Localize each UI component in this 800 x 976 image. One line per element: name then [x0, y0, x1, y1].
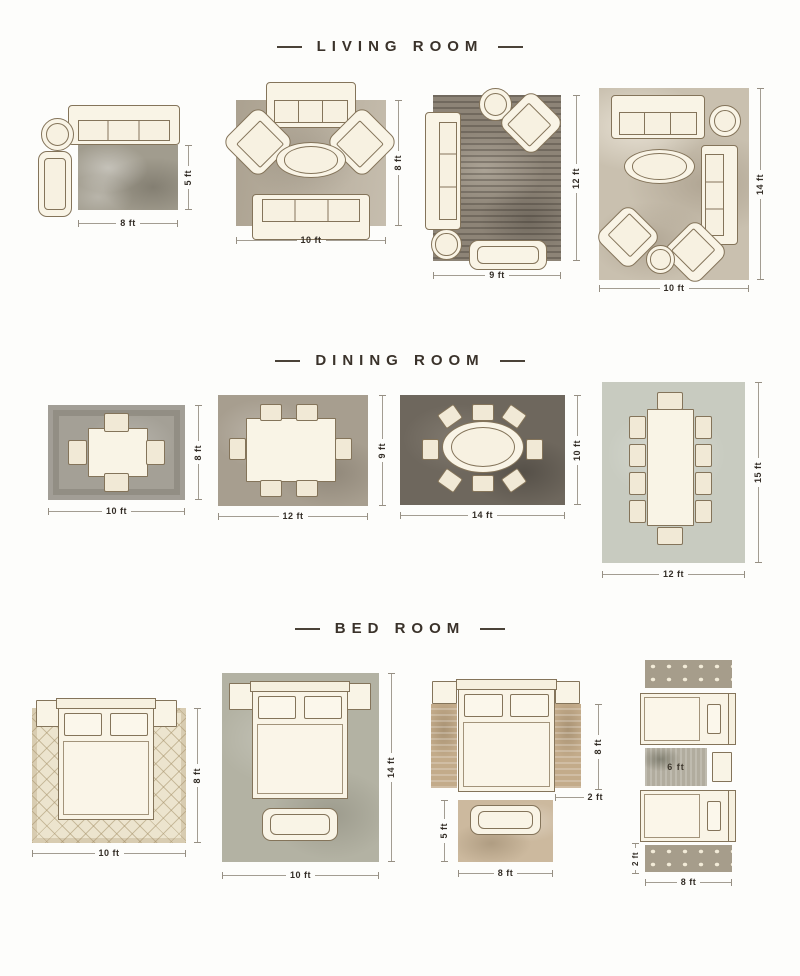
- accent-rug: 6 ft: [645, 748, 707, 786]
- dimension-label: 10 ft: [297, 235, 326, 245]
- oval-coffee-table: [624, 149, 695, 184]
- bed-sheet: [257, 724, 343, 794]
- nightstand: [712, 752, 732, 782]
- round-side-table: [646, 245, 675, 274]
- dining-chair: [695, 444, 712, 467]
- dimension-label: 12 ft: [279, 511, 308, 521]
- width-dimension: 10 ft: [236, 234, 386, 246]
- section-title-label: DINING ROOM: [315, 352, 484, 369]
- pillow: [464, 694, 503, 717]
- runner-rug: [645, 845, 732, 872]
- dimension-label: 15 ft: [753, 458, 763, 487]
- dimension-label: 8 ft: [192, 764, 202, 788]
- dining-chair: [629, 500, 646, 523]
- dining-chair: [260, 480, 282, 497]
- headboard: [56, 698, 156, 709]
- headboard: [728, 693, 736, 745]
- dining-room-layout-9x12: 9 ft 12 ft: [215, 390, 393, 520]
- bed-sheet: [644, 794, 700, 838]
- width-dimension: 14 ft: [400, 509, 565, 521]
- chaise-lounge: [38, 151, 72, 217]
- height-dimension: 10 ft: [570, 395, 584, 505]
- height-dimension: 14 ft: [384, 673, 398, 862]
- pillow: [707, 704, 721, 734]
- dimension-label: 10 ft: [572, 436, 582, 465]
- dining-chair: [526, 439, 543, 460]
- headboard: [250, 681, 350, 692]
- dining-chair: [472, 404, 494, 421]
- rug-size-label: 6 ft: [645, 748, 707, 786]
- width-dimension: 9 ft: [433, 269, 561, 281]
- dimension-label: 8 ft: [494, 868, 518, 878]
- width-dimension: 10 ft: [32, 847, 186, 859]
- height-dimension: 8 ft: [391, 100, 405, 226]
- bed-sheet: [644, 697, 700, 741]
- twin-bed: [640, 790, 736, 842]
- twin-bed: [640, 693, 736, 745]
- dimension-label: 9 ft: [485, 270, 509, 280]
- dining-chair: [229, 438, 246, 460]
- width-dimension: 10 ft: [599, 282, 749, 294]
- pillow: [304, 696, 343, 719]
- dining-chair: [472, 475, 494, 492]
- round-side-table: [41, 118, 74, 151]
- dining-chair: [629, 416, 646, 439]
- bed-sheet: [63, 741, 149, 815]
- bedroom-layout-10x14: 14 ft 10 ft: [215, 665, 397, 881]
- height-dimension: 8 ft: [191, 405, 205, 500]
- pillow: [258, 696, 297, 719]
- headboard: [728, 790, 736, 842]
- dining-chair: [260, 404, 282, 421]
- width-dimension: 12 ft: [218, 510, 368, 522]
- width-dimension: 10 ft: [48, 505, 185, 517]
- dining-chair: [104, 413, 129, 432]
- runner-rug: [555, 704, 581, 788]
- dining-chair: [629, 444, 646, 467]
- pillow: [707, 801, 721, 831]
- pillow: [510, 694, 549, 717]
- dimension-label: 10 ft: [660, 283, 689, 293]
- nightstand: [432, 681, 457, 704]
- dining-chair: [335, 438, 352, 460]
- dining-chair: [146, 440, 165, 465]
- bed-sheet: [463, 722, 550, 787]
- runner-width-dimension: 2 ft: [628, 843, 642, 874]
- dining-room-layout-12x15: 15 ft 12 ft: [598, 375, 776, 577]
- bed: [58, 698, 154, 820]
- round-table: [709, 105, 741, 137]
- width-dimension: 8 ft: [78, 217, 178, 229]
- dimension-label: 9 ft: [377, 439, 387, 463]
- width-dimension: 12 ft: [602, 568, 745, 580]
- height-dimension: 8 ft: [190, 708, 204, 843]
- section-title-label: BED ROOM: [335, 620, 466, 637]
- dimension-label: 14 ft: [468, 510, 497, 520]
- width-dimension: 10 ft: [222, 869, 379, 881]
- pillow: [110, 713, 149, 736]
- sofa: [425, 112, 461, 230]
- width-dimension: 8 ft: [645, 876, 732, 888]
- height-dimension: 12 ft: [569, 95, 583, 261]
- dining-chair: [422, 439, 439, 460]
- dining-table: [246, 418, 336, 482]
- living-room-layout-9x12: 12 ft 9 ft: [425, 88, 597, 280]
- dimension-label: 8 ft: [393, 151, 403, 175]
- living-room-layout-5x8: 5 ft 8 ft: [35, 95, 210, 235]
- height-dimension: 14 ft: [753, 88, 767, 280]
- dining-chair: [296, 480, 318, 497]
- bench: [262, 808, 338, 841]
- dining-chair: [629, 472, 646, 495]
- sofa: [68, 105, 180, 145]
- height-dimension: 9 ft: [375, 395, 389, 506]
- dining-chair: [68, 440, 87, 465]
- dining-table: [88, 428, 148, 477]
- section-title-living-room: LIVING ROOM: [0, 38, 800, 55]
- dimension-label: 10 ft: [95, 848, 124, 858]
- dining-chair: [695, 472, 712, 495]
- rug: [78, 145, 178, 210]
- dimension-label: 8 ft: [593, 735, 603, 759]
- dining-chair: [657, 527, 683, 545]
- sofa: [611, 95, 705, 139]
- dimension-label: 12 ft: [571, 164, 581, 193]
- dimension-label: 14 ft: [755, 170, 765, 199]
- dimension-label: 8 ft: [193, 441, 203, 465]
- height-dimension: 15 ft: [751, 382, 765, 563]
- living-room-layout-10x14: 14 ft 10 ft: [595, 82, 773, 290]
- nightstand: [555, 681, 580, 704]
- dining-table: [647, 409, 694, 526]
- living-room-layout-8x10: 8 ft 10 ft: [228, 82, 406, 258]
- section-title-bed-room: BED ROOM: [0, 620, 800, 637]
- headboard: [456, 679, 557, 690]
- bedroom-layout-twin-beds: 6 ft 2 ft 8 ft: [628, 655, 800, 887]
- dimension-label: 14 ft: [386, 753, 396, 782]
- runner-height-dimension: 8 ft: [591, 704, 605, 790]
- dimension-label: 2 ft: [631, 848, 640, 870]
- runner-rug: [431, 704, 457, 788]
- section-title-dining-room: DINING ROOM: [0, 352, 800, 369]
- dining-chair: [104, 473, 129, 492]
- dining-chair: [296, 404, 318, 421]
- dimension-label: 10 ft: [286, 870, 315, 880]
- bed: [458, 679, 555, 792]
- dimension-label: 5 ft: [439, 819, 449, 843]
- pillow: [64, 713, 103, 736]
- dimension-label: 8 ft: [677, 877, 701, 887]
- dining-chair: [657, 392, 683, 410]
- oval-dining-table: [442, 421, 524, 473]
- foot-rug-height-dimension: 5 ft: [437, 800, 451, 862]
- dimension-label: 5 ft: [183, 166, 193, 190]
- oval-coffee-table: [276, 142, 346, 178]
- section-title-label: LIVING ROOM: [317, 38, 484, 55]
- width-dimension: 8 ft: [458, 867, 553, 879]
- bench: [469, 240, 547, 270]
- dimension-label: 8 ft: [116, 218, 140, 228]
- bedroom-layout-8x10: 8 ft 10 ft: [28, 698, 206, 860]
- dimension-label: 12 ft: [659, 569, 688, 579]
- bed: [252, 681, 348, 799]
- runner-width-dimension: 2 ft: [555, 791, 607, 803]
- round-side-table: [431, 229, 462, 260]
- sofa: [266, 82, 356, 128]
- bench: [470, 805, 541, 835]
- rug-size-guide: LIVING ROOM 5 ft 8 ft 8 ft 10 ft 12 ft 9…: [0, 0, 800, 976]
- dining-room-layout-10x14: 10 ft 14 ft: [398, 390, 580, 520]
- bedroom-layout-runners: 8 ft 2 ft 5 ft 8 ft: [425, 668, 613, 880]
- runner-rug: [645, 660, 732, 688]
- dimension-label: 10 ft: [102, 506, 131, 516]
- dining-chair: [695, 500, 712, 523]
- dining-room-layout-8x10: 8 ft 10 ft: [45, 400, 207, 518]
- dimension-label: 2 ft: [584, 792, 608, 802]
- height-dimension: 5 ft: [181, 145, 195, 210]
- dining-chair: [695, 416, 712, 439]
